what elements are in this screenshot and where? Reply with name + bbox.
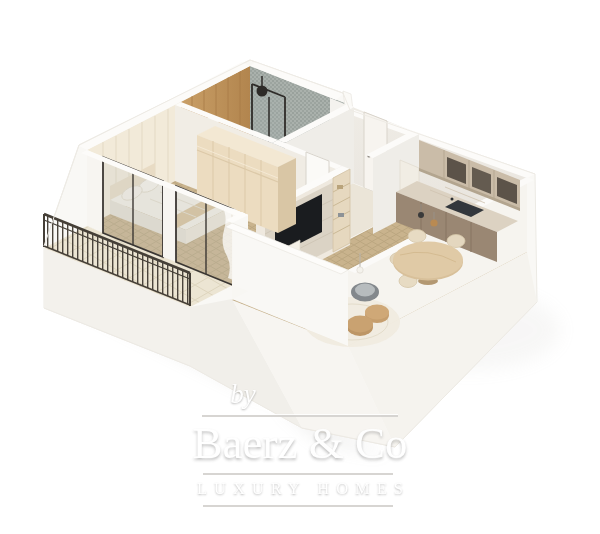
faucet — [451, 198, 454, 201]
watermark-divider — [202, 415, 398, 417]
watermark-by: by — [178, 381, 308, 408]
floorplan-render: by Baerz & Co LUXURY HOMES — [0, 0, 600, 534]
watermark-divider — [203, 473, 393, 475]
watermark-divider — [203, 505, 393, 507]
watermark-tagline: LUXURY HOMES — [178, 479, 422, 499]
pouf — [347, 316, 373, 337]
lounge-chair-gray — [351, 283, 379, 302]
watermark-brand: Baerz & Co — [178, 418, 422, 470]
dining-chair — [408, 230, 426, 243]
watermark: by Baerz & Co LUXURY HOMES — [178, 381, 422, 507]
shelving-unit — [333, 169, 350, 252]
